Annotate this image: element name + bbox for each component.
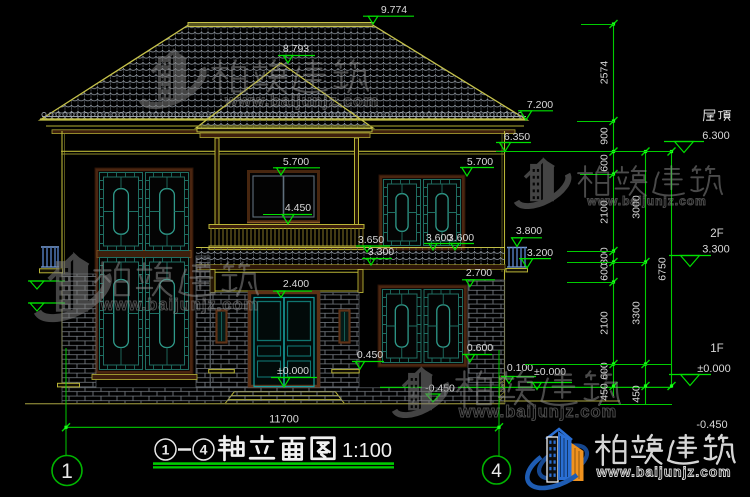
svg-text:0.100: 0.100 xyxy=(507,362,533,374)
svg-text:8.793: 8.793 xyxy=(283,43,309,55)
svg-text:0.450: 0.450 xyxy=(357,349,383,361)
svg-text:4: 4 xyxy=(491,461,502,482)
svg-text:-0.450: -0.450 xyxy=(696,419,727,431)
svg-text:11700: 11700 xyxy=(269,414,299,426)
svg-text:±0.000: ±0.000 xyxy=(697,363,731,375)
svg-text:±0.000: ±0.000 xyxy=(277,365,309,377)
svg-text:2.400: 2.400 xyxy=(283,278,309,290)
svg-text:6.300: 6.300 xyxy=(702,130,730,142)
svg-text:www.baijunjz.com: www.baijunjz.com xyxy=(586,194,707,208)
svg-text:7.200: 7.200 xyxy=(527,99,553,111)
svg-text:5.700: 5.700 xyxy=(283,156,309,168)
svg-text:www.baijunjz.com: www.baijunjz.com xyxy=(224,93,379,110)
svg-text:www.baijunjz.com: www.baijunjz.com xyxy=(595,465,731,480)
svg-text:0.600: 0.600 xyxy=(467,342,493,354)
svg-text:3.600: 3.600 xyxy=(448,232,474,244)
svg-text:www.baijunjz.com: www.baijunjz.com xyxy=(458,403,617,421)
svg-text:3.200: 3.200 xyxy=(527,247,553,259)
svg-text:3.800: 3.800 xyxy=(516,225,542,237)
svg-text:6.350: 6.350 xyxy=(504,131,530,143)
svg-text:900: 900 xyxy=(599,127,611,145)
svg-text:5.700: 5.700 xyxy=(467,156,493,168)
svg-text:1F: 1F xyxy=(710,343,723,355)
svg-text:3.300: 3.300 xyxy=(702,244,730,256)
svg-text:450: 450 xyxy=(631,385,643,403)
svg-text:1: 1 xyxy=(162,442,170,458)
svg-text:9.774: 9.774 xyxy=(381,4,407,16)
svg-text:4.450: 4.450 xyxy=(285,202,311,214)
svg-text:1: 1 xyxy=(61,460,73,483)
svg-text:2574: 2574 xyxy=(599,61,611,85)
svg-text:600: 600 xyxy=(599,263,611,281)
svg-text:600: 600 xyxy=(599,154,611,172)
svg-text:1:100: 1:100 xyxy=(342,440,392,462)
svg-text:6750: 6750 xyxy=(657,257,669,281)
svg-text:3300: 3300 xyxy=(631,301,643,325)
svg-text:2.700: 2.700 xyxy=(466,267,492,279)
svg-text:2F: 2F xyxy=(710,228,723,240)
svg-text:3.300: 3.300 xyxy=(368,246,394,258)
svg-text:3.650: 3.650 xyxy=(358,234,384,246)
svg-text:2100: 2100 xyxy=(599,311,611,335)
svg-text:4: 4 xyxy=(200,442,208,458)
svg-text:www.baijunjz.com: www.baijunjz.com xyxy=(100,296,259,314)
